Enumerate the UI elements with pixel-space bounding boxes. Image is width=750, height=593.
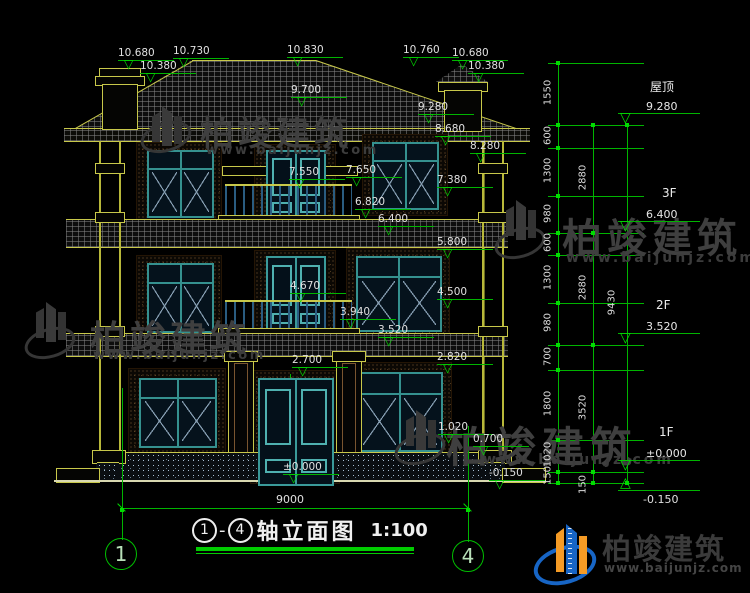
elevation-triangle-icon: ▽ (443, 298, 497, 309)
elevation-triangle-icon: ▽ (297, 96, 351, 107)
floor-label-2f: 2F (656, 298, 671, 312)
logo-building-bar (579, 536, 587, 574)
elevation-marker: 9.700▽ (291, 84, 351, 107)
axis-bubble-1: 1 (105, 538, 137, 570)
window-1f-left (139, 378, 217, 448)
column-left-cap-3f (95, 212, 125, 223)
column-right-cap-top (478, 163, 508, 174)
cad-elevation-drawing: 10.680▽ 10.380▽ 10.730▽ 10.830▽ 9.700▽ 1… (0, 0, 750, 593)
window-3f-left (147, 150, 214, 218)
column-left (99, 141, 121, 453)
floor-value-minus: -0.150 (643, 493, 678, 506)
elevation-triangle-icon: ▽ (295, 178, 349, 189)
elevation-triangle-icon: ▽ (443, 248, 497, 259)
elevation-triangle-icon: ▽ (298, 366, 352, 377)
dim-value: 9430 (607, 281, 618, 325)
column-left-cap-top (95, 163, 125, 174)
chimney-body (102, 84, 138, 130)
logo-building-bar (556, 528, 564, 572)
elevation-marker: 2.700▽ (292, 354, 352, 377)
elevation-triangle-icon: ▽ (476, 152, 530, 163)
floor-label-1f: 1F (659, 425, 674, 439)
title-separator: - (219, 520, 226, 541)
elevation-marker: 10.830▽ (287, 44, 347, 67)
elevation-triangle-icon: ▽ (443, 186, 497, 197)
elevation-triangle-icon: ▽ (179, 57, 233, 68)
title-axis-circle-from: 1 (192, 518, 217, 543)
elevation-triangle-icon: ▽ (620, 332, 700, 344)
dim-value: 3520 (578, 386, 589, 430)
elevation-marker: -0.150▽ (489, 467, 549, 490)
elevation-triangle-icon: ▽ (289, 473, 343, 484)
elevation-triangle-icon: ▽ (296, 292, 350, 303)
drawing-title: 1 - 4 轴立面图 1:100 (192, 514, 428, 546)
elevation-marker: 5.800▽ (437, 236, 497, 259)
elevation-marker-right: ±0.000▽ (618, 447, 700, 471)
elevation-triangle-icon: ▽ (495, 479, 549, 490)
overall-width-value: 9000 (276, 493, 304, 506)
column-right-cap-2f (478, 326, 508, 337)
axis-bubble-4: 4 (452, 540, 484, 572)
level-line (548, 63, 644, 64)
level-line (548, 370, 644, 371)
elevation-triangle-icon: ▽ (474, 72, 528, 83)
title-underline (196, 547, 414, 551)
dim-value: 1300 (543, 256, 554, 300)
elevation-triangle-icon: ▽ (479, 445, 533, 456)
watermark-logo-icon (140, 104, 194, 156)
elevation-triangle-up-icon: △ (620, 477, 631, 489)
tick-dots (556, 61, 560, 65)
dim-value: 150 (578, 463, 589, 507)
elevation-triangle-icon: ▽ (293, 56, 347, 67)
elevation-marker: 6.400▽ (378, 213, 438, 236)
title-text: 轴立面图 (257, 514, 357, 546)
elevation-triangle-icon: ▽ (620, 112, 700, 124)
title-axis-circle-to: 4 (228, 518, 253, 543)
elevation-marker-right: 3.520▽ (618, 320, 700, 344)
elevation-triangle-icon: ▽ (620, 220, 700, 232)
elevation-triangle-icon: ▽ (620, 459, 700, 471)
watermark-logo-icon (24, 300, 80, 362)
logo-building-bar (566, 524, 577, 574)
overall-dim-line (120, 508, 468, 509)
elevation-marker: 4.500▽ (437, 286, 497, 309)
elevation-triangle-icon: ▽ (146, 72, 200, 83)
elevation-marker: 4.670▽ (290, 280, 350, 303)
level-line (548, 303, 644, 304)
elevation-marker: 7.550▽ (289, 166, 349, 189)
floor-label-roof: 屋顶 (650, 78, 674, 95)
elevation-marker: 8.280▽ (470, 140, 530, 163)
dim-value: 2880 (578, 156, 589, 200)
elevation-marker: 7.380▽ (437, 174, 497, 197)
dim-value: 1550 (543, 71, 554, 115)
dim-value: 700 (543, 335, 554, 379)
level-line (548, 148, 644, 149)
dim-value: 1300 (543, 149, 554, 193)
floor-label-3f: 3F (662, 186, 677, 200)
axis-extension-left (122, 388, 123, 540)
elevation-triangle-icon: ▽ (384, 225, 438, 236)
brand-url: www.baijunjz.com (604, 561, 743, 575)
title-scale: 1:100 (371, 520, 428, 541)
dim-value: 150 (543, 454, 554, 498)
elevation-marker: 7.650▽ (346, 164, 406, 187)
elevation-marker: 2.820▽ (437, 351, 497, 374)
elevation-marker: 0.700▽ (473, 433, 533, 456)
brand-logo-icon (533, 522, 595, 584)
elevation-marker-right: 6.400▽ (618, 208, 700, 232)
column-left-pedestal (97, 462, 119, 482)
level-line (548, 196, 644, 197)
elevation-marker-right: 9.280▽ (618, 100, 700, 124)
elevation-marker: 9.280▽ (418, 101, 478, 124)
elevation-triangle-icon: ▽ (443, 363, 497, 374)
elevation-marker: ±0.000▽ (283, 461, 343, 484)
elevation-marker: 3.520▽ (378, 324, 438, 347)
elevation-marker: 10.380▽ (468, 60, 528, 83)
title-underline-thin (196, 553, 414, 554)
logo-swoosh (529, 538, 601, 592)
elevation-marker: 10.730▽ (173, 45, 233, 68)
dim-value: 1800 (543, 382, 554, 426)
elevation-triangle-icon: ▽ (352, 176, 406, 187)
dim-value: 2880 (578, 266, 589, 310)
elevation-triangle-icon: ▽ (384, 336, 438, 347)
